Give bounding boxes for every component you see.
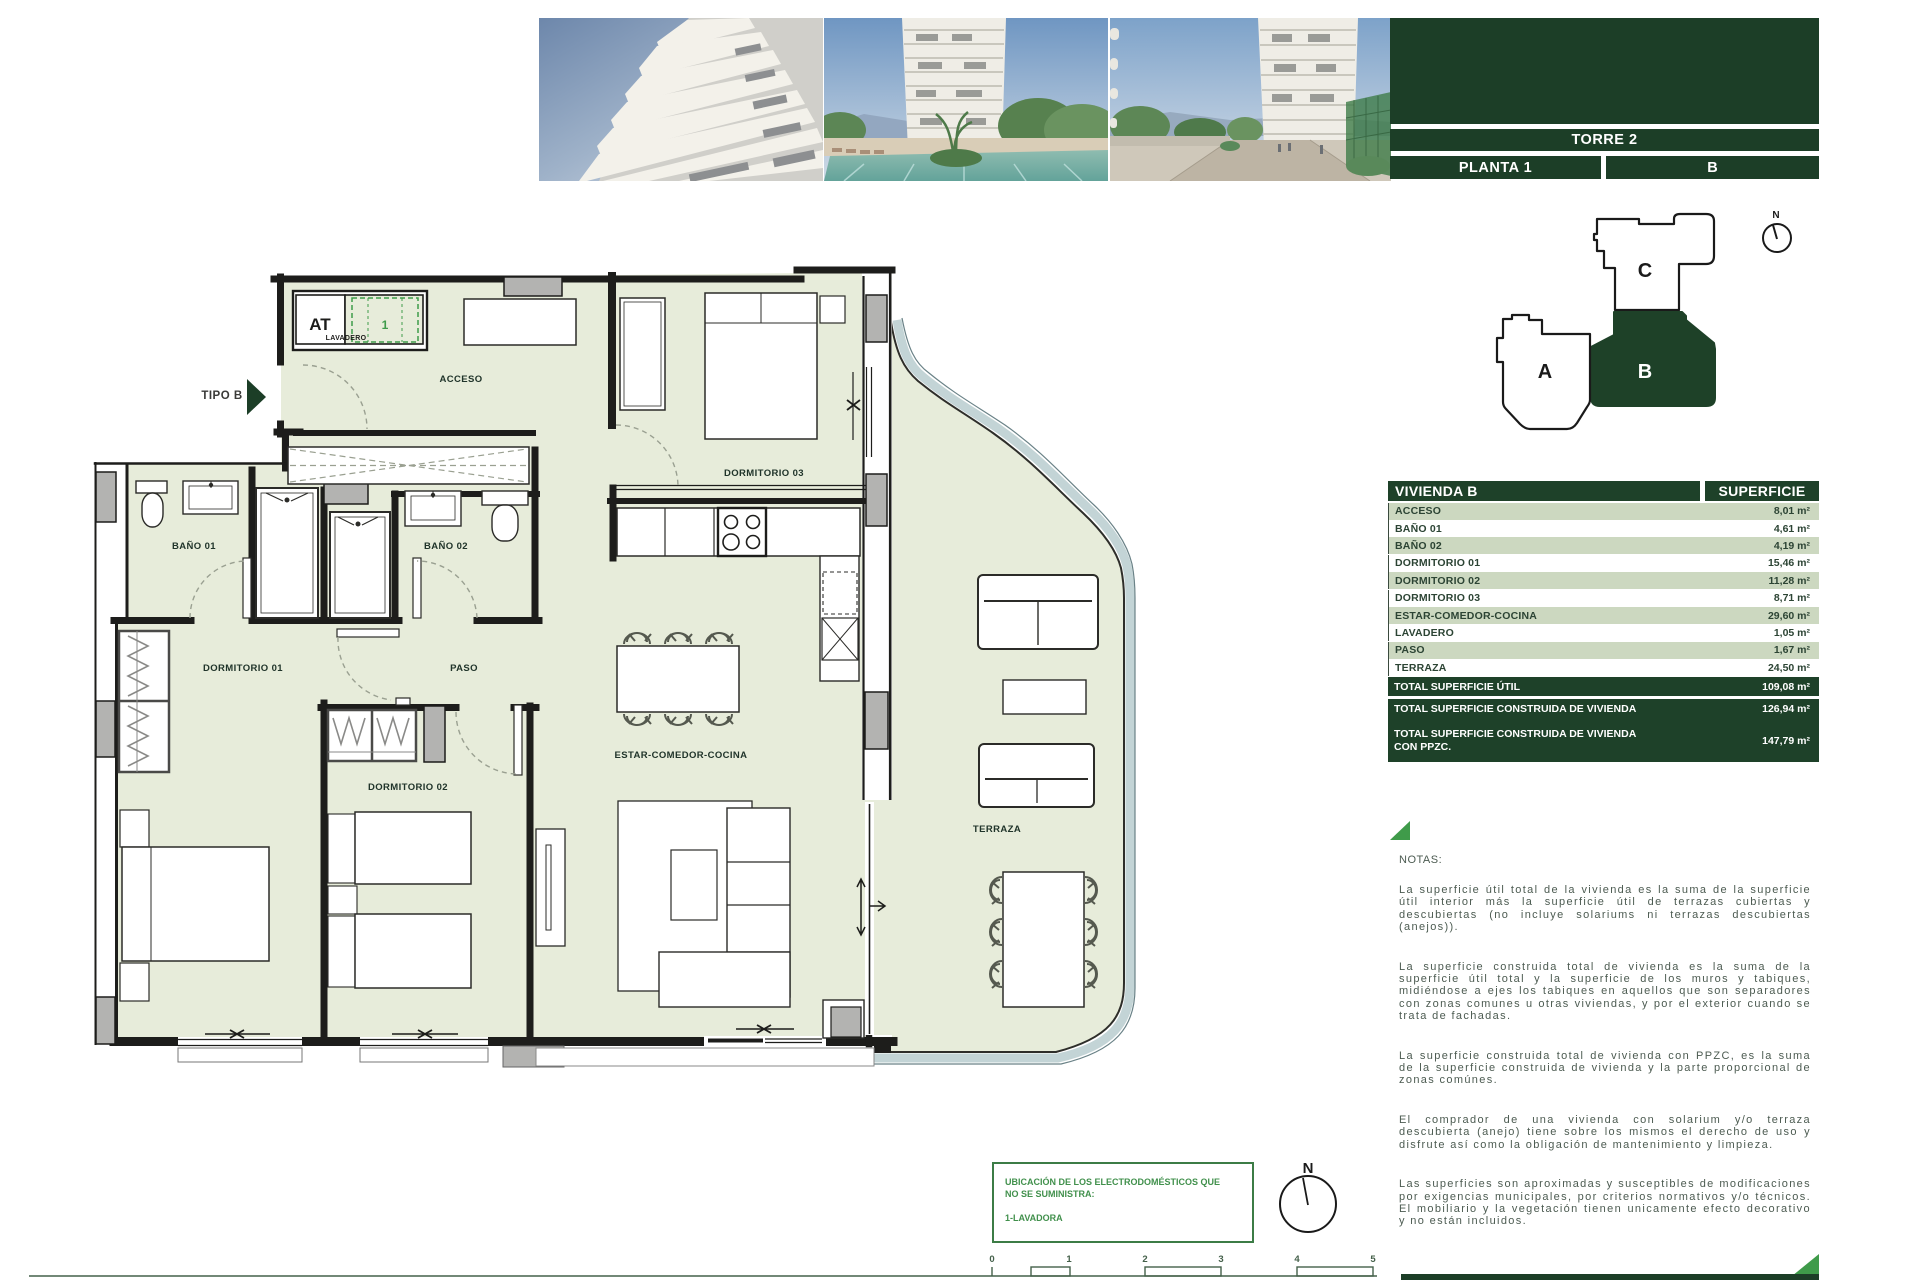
svg-text:PASO: PASO [450, 663, 478, 674]
svg-text:ESTAR-COMEDOR-COCINA: ESTAR-COMEDOR-COCINA [615, 750, 748, 761]
svg-text:DORMITORIO 02: DORMITORIO 02 [368, 782, 448, 793]
svg-text:ACCESO: ACCESO [439, 374, 482, 385]
svg-text:TERRAZA: TERRAZA [973, 824, 1021, 835]
svg-text:BAÑO 01: BAÑO 01 [172, 541, 216, 552]
svg-text:TIPO B: TIPO B [201, 390, 242, 402]
svg-text:LAVADERO: LAVADERO [326, 335, 367, 342]
svg-text:AT: AT [309, 315, 331, 334]
svg-text:BAÑO 02: BAÑO 02 [424, 541, 468, 552]
svg-text:DORMITORIO 03: DORMITORIO 03 [724, 468, 804, 479]
svg-text:1: 1 [382, 318, 389, 332]
svg-text:DORMITORIO 01: DORMITORIO 01 [203, 663, 283, 674]
